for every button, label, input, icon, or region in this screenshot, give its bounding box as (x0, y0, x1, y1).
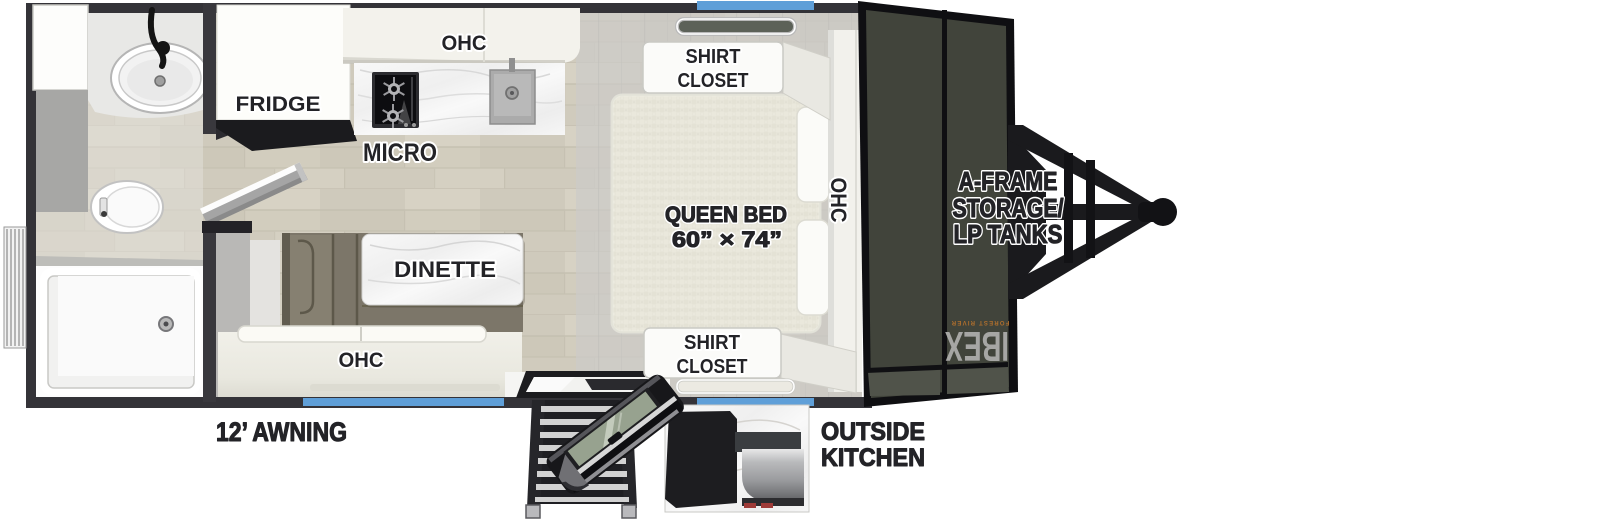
svg-text:OHC: OHC (442, 32, 487, 55)
svg-text:OHC: OHC (826, 178, 851, 223)
svg-text:SHIRT: SHIRT (686, 46, 741, 68)
svg-text:FOREST RIVER: FOREST RIVER (951, 319, 1010, 325)
svg-text:CLOSET: CLOSET (678, 70, 749, 92)
svg-text:SHIRT: SHIRT (684, 332, 740, 354)
svg-text:IBEX: IBEX (945, 323, 1009, 370)
svg-text:QUEEN BED: QUEEN BED (665, 202, 787, 227)
svg-text:12’ AWNING: 12’ AWNING (216, 417, 347, 447)
svg-text:OHC: OHC (339, 349, 384, 372)
svg-text:LP TANKS: LP TANKS (954, 219, 1063, 249)
svg-text:KITCHEN: KITCHEN (821, 444, 925, 472)
svg-text:MICRO: MICRO (363, 139, 437, 167)
svg-text:DINETTE: DINETTE (394, 257, 496, 282)
svg-text:A-FRAME: A-FRAME (959, 166, 1058, 196)
svg-text:60” × 74”: 60” × 74” (672, 227, 782, 252)
svg-text:CLOSET: CLOSET (677, 356, 748, 378)
svg-text:FRIDGE: FRIDGE (236, 93, 321, 116)
svg-text:OUTSIDE: OUTSIDE (821, 418, 925, 446)
